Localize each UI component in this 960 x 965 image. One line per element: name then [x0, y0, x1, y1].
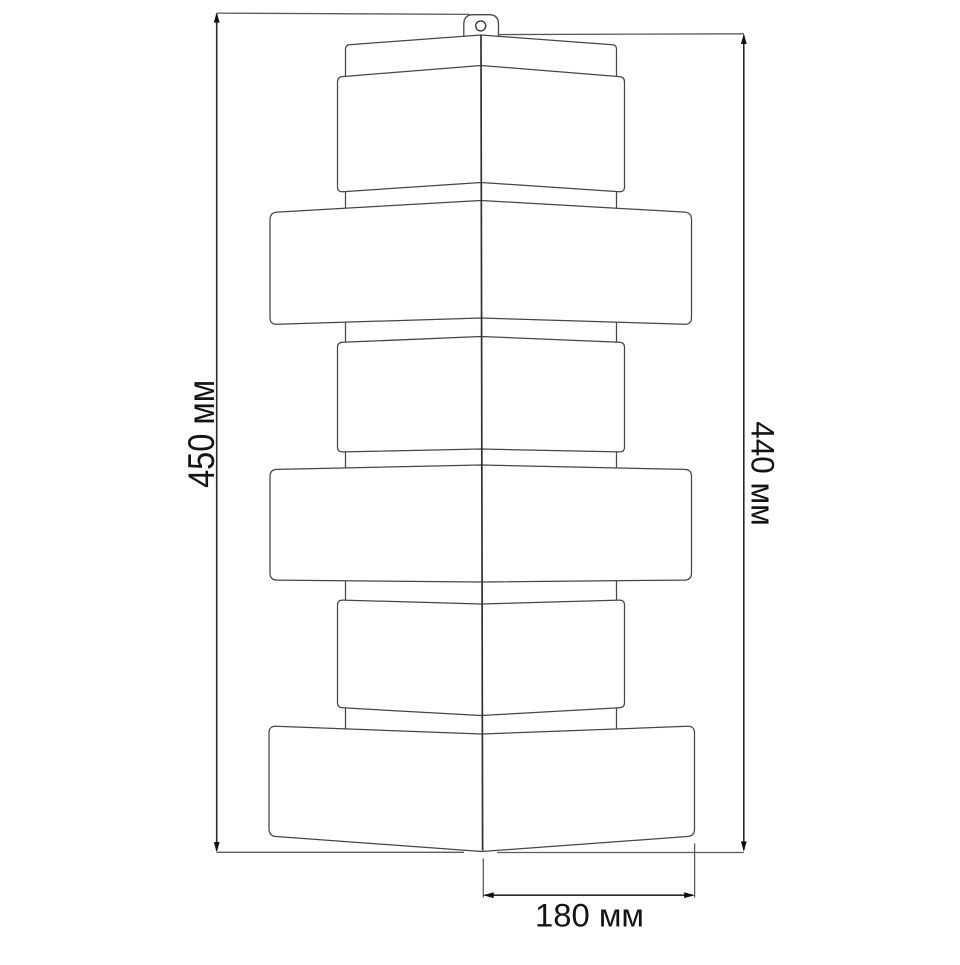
svg-text:440 мм: 440 мм: [744, 421, 780, 526]
svg-text:180 мм: 180 мм: [535, 897, 644, 933]
svg-text:450 мм: 450 мм: [180, 380, 222, 488]
